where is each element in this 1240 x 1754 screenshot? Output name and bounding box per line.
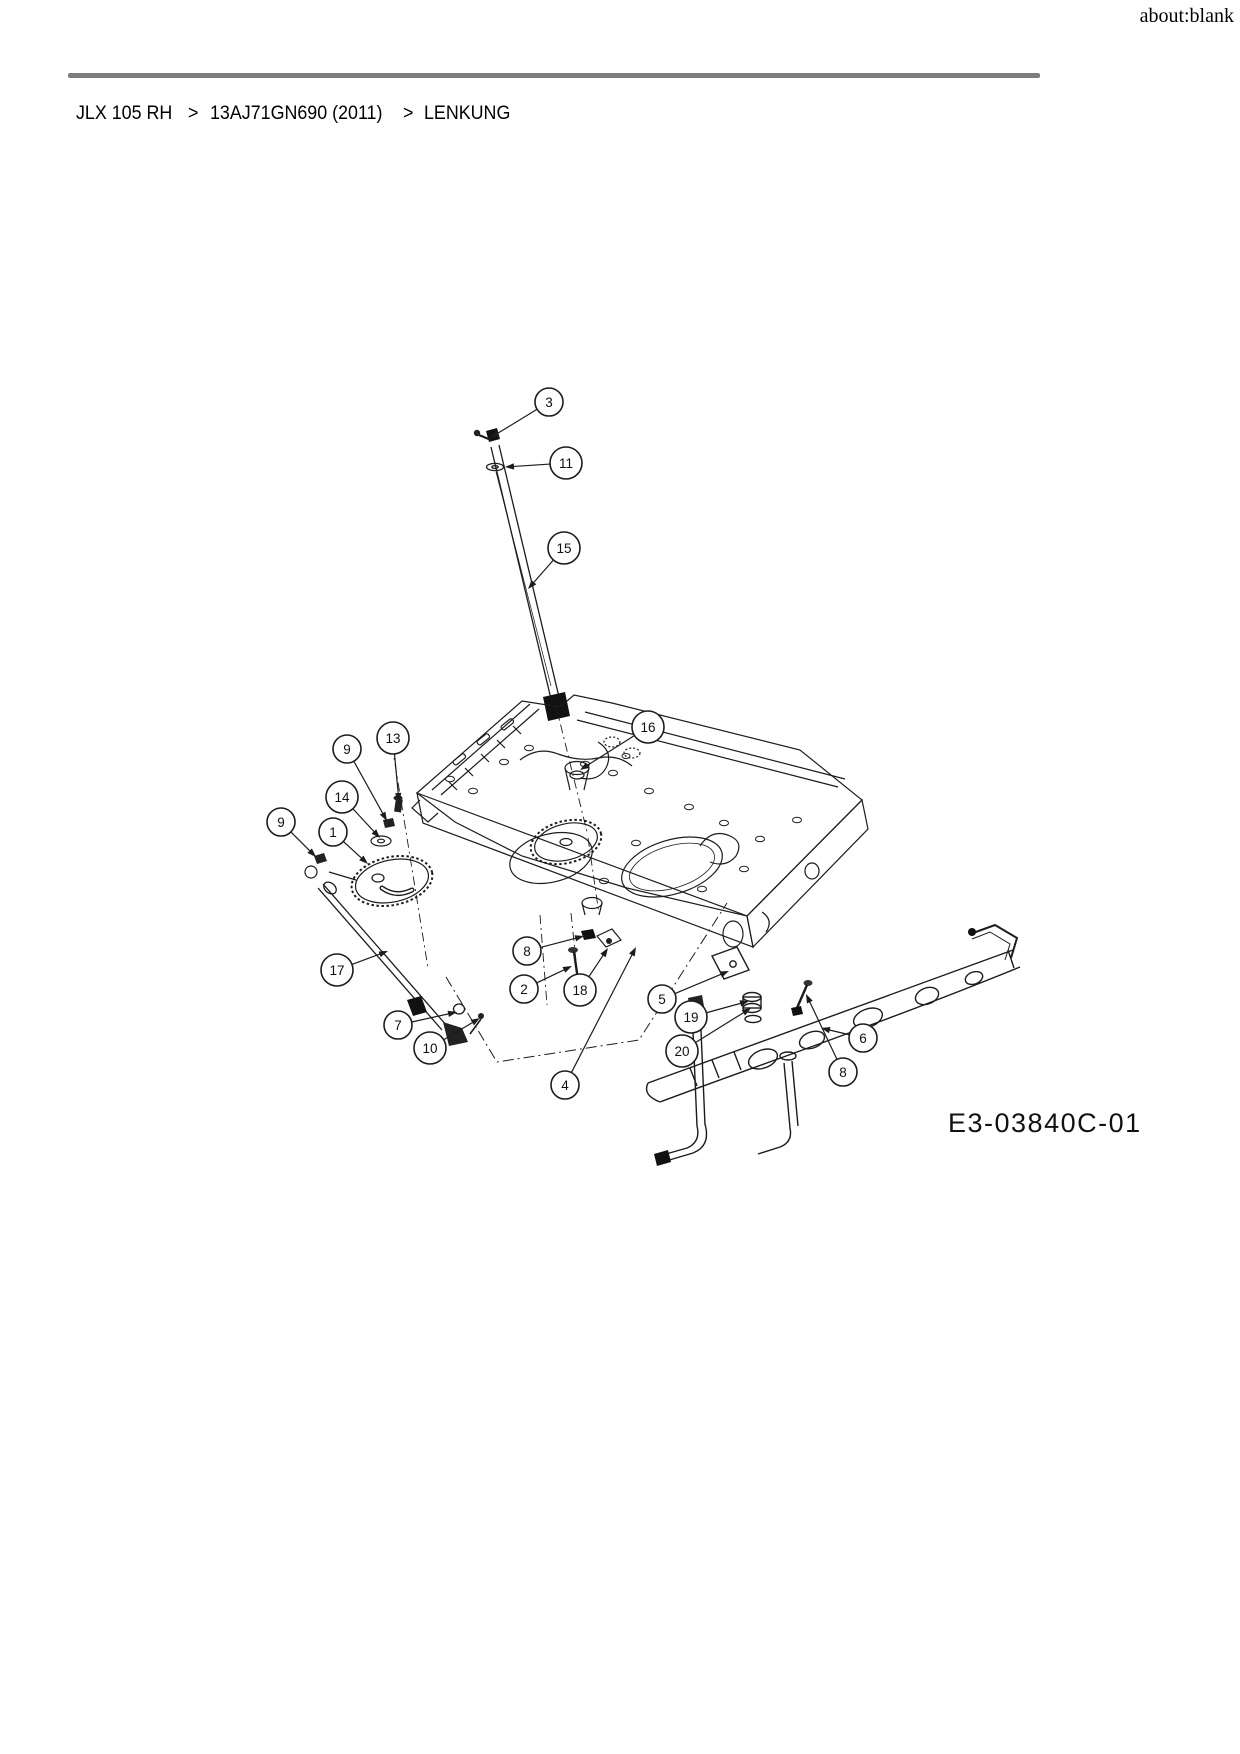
- grease-fitting-icon: [478, 1013, 484, 1019]
- callout-arrow-icon: [380, 812, 387, 821]
- callout-leader-line: [541, 938, 578, 948]
- callout-number: 7: [394, 1018, 402, 1033]
- callout-leader-line: [571, 953, 632, 1072]
- printed-parts-page: about:blank JLX 105 RH > 13AJ71GN690 (20…: [0, 0, 1240, 1754]
- steering-parts-diagram: 3111516139141917710821845192068: [0, 0, 1240, 1754]
- steering-gear-art: [305, 745, 437, 968]
- callout-leader-line: [291, 832, 311, 852]
- callout-6: 6: [821, 1024, 877, 1052]
- callout-leader-line: [589, 954, 604, 977]
- callout-leader-line: [354, 761, 384, 815]
- callout-leader-line: [675, 974, 723, 994]
- callout-11: 11: [505, 447, 582, 479]
- callout-number: 1: [329, 825, 337, 840]
- washer-icon: [745, 1015, 761, 1022]
- callout-18: 18: [564, 948, 608, 1006]
- callout-arrow-icon: [574, 935, 584, 941]
- callout-leader-line: [809, 1000, 837, 1059]
- washer-icon: [371, 836, 391, 846]
- callout-number: 9: [277, 815, 285, 830]
- callout-number: 16: [640, 720, 655, 735]
- callout-leader-line: [586, 736, 635, 767]
- callout-layer: 3111516139141917710821845192068: [267, 388, 877, 1099]
- callout-arrow-icon: [629, 947, 636, 956]
- callout-leader-line: [512, 464, 550, 466]
- callout-2: 2: [510, 966, 572, 1003]
- callout-leader-line: [533, 560, 554, 584]
- callout-number: 5: [658, 992, 666, 1007]
- callout-leader-line: [496, 409, 537, 434]
- callout-13: 13: [377, 722, 409, 802]
- callout-number: 11: [559, 456, 573, 471]
- callout-number: 4: [561, 1078, 569, 1093]
- callout-number: 13: [385, 731, 400, 746]
- callout-15: 15: [528, 532, 580, 589]
- callout-arrow-icon: [563, 966, 572, 973]
- callout-leader-line: [394, 754, 398, 795]
- callout-16: 16: [580, 711, 664, 770]
- callout-arrow-icon: [600, 948, 608, 957]
- callout-1: 1: [319, 818, 368, 864]
- callout-leader-line: [353, 809, 375, 833]
- callout-leader-line: [828, 1030, 850, 1035]
- callout-number: 6: [859, 1031, 867, 1046]
- callout-number: 17: [329, 963, 344, 978]
- callout-9: 9: [267, 808, 316, 857]
- callout-number: 3: [545, 395, 553, 410]
- callout-number: 8: [839, 1065, 847, 1080]
- callout-arrow-icon: [448, 1011, 457, 1017]
- callout-number: 10: [422, 1041, 437, 1056]
- callout-arrow-icon: [505, 463, 514, 469]
- callout-number: 9: [343, 742, 351, 757]
- ball-joint-icon: [443, 1022, 468, 1046]
- callout-leader-line: [537, 969, 566, 983]
- callout-number: 15: [556, 541, 571, 556]
- callout-leader-line: [412, 1014, 450, 1022]
- callout-number: 14: [334, 790, 350, 805]
- callout-3: 3: [490, 388, 563, 438]
- callout-leader-line: [352, 953, 381, 964]
- callout-leader-line: [343, 841, 363, 859]
- callout-arrow-icon: [806, 994, 813, 1004]
- callout-number: 2: [520, 982, 528, 997]
- callout-number: 8: [523, 944, 531, 959]
- bolt-icon: [568, 947, 578, 953]
- callout-arrow-icon: [719, 971, 729, 977]
- callout-number: 20: [674, 1044, 689, 1059]
- hex-nut-icon: [314, 853, 327, 864]
- drawing-number: E3-03840C-01: [948, 1108, 1142, 1139]
- callout-number: 19: [683, 1010, 698, 1025]
- hex-nut-icon: [383, 818, 395, 828]
- hex-nut-icon: [581, 929, 596, 940]
- callout-leader-line: [706, 1003, 742, 1013]
- steering-shaft-art: [474, 428, 587, 832]
- bolt-icon: [804, 980, 813, 986]
- callout-number: 18: [572, 983, 587, 998]
